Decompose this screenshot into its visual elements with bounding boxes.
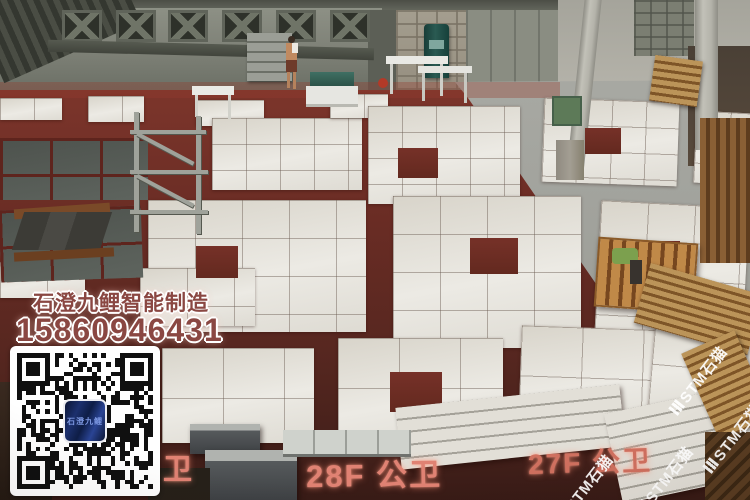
exhaust-fan-6 bbox=[330, 10, 370, 42]
person-shirt bbox=[292, 43, 298, 53]
dark-slab-rows bbox=[0, 138, 148, 200]
exhaust-fan-3 bbox=[168, 10, 208, 42]
block-wall-right bbox=[634, 0, 694, 56]
red-bucket bbox=[378, 78, 388, 88]
stacked-green-tiles bbox=[310, 72, 354, 86]
work-table-1 bbox=[386, 56, 448, 64]
tile-patch bbox=[368, 106, 520, 204]
table-leg bbox=[422, 73, 425, 101]
work-table-2 bbox=[418, 66, 472, 73]
factory-photo: 卫 28F 公卫 27F 公卫 STM石猫 STM石猫 STM石猫 STM石猫 … bbox=[0, 0, 750, 500]
floor-label-28f: 28F 公卫 bbox=[306, 449, 443, 496]
qr-code: 石澄九鲤 bbox=[10, 346, 160, 496]
table-leg bbox=[464, 73, 467, 103]
cabinet-label bbox=[429, 40, 444, 49]
phone-number: 15860946431 bbox=[16, 314, 223, 346]
floor-label-partial: 卫 bbox=[163, 446, 194, 488]
dark-bottle bbox=[630, 260, 642, 284]
small-table bbox=[192, 86, 234, 95]
metal-rack bbox=[130, 112, 208, 234]
tile-patch bbox=[212, 118, 362, 190]
person-leg bbox=[293, 72, 296, 89]
wood-aframe-slabs bbox=[14, 198, 114, 266]
person-leg bbox=[287, 72, 290, 88]
qr-center-logo: 石澄九鲤 bbox=[63, 399, 107, 443]
white-cart bbox=[306, 86, 358, 104]
worker-person bbox=[283, 36, 299, 90]
leaning-planks bbox=[649, 55, 703, 107]
floor-inlay bbox=[398, 148, 438, 178]
concrete-block-base bbox=[556, 140, 584, 180]
exhaust-fan-2 bbox=[116, 10, 156, 42]
exhaust-fan-1 bbox=[62, 10, 102, 42]
green-machine bbox=[552, 96, 582, 126]
floor-inlay bbox=[470, 238, 518, 274]
floor-edge-band bbox=[0, 82, 560, 98]
wall-panels bbox=[466, 10, 564, 88]
table-leg bbox=[228, 95, 231, 119]
table-leg bbox=[390, 64, 393, 94]
company-name: 石澄九鲤智能制造 bbox=[33, 293, 209, 314]
tile-strip bbox=[0, 98, 62, 120]
floor-inlay bbox=[585, 128, 621, 154]
vertical-slab-rack bbox=[700, 118, 750, 263]
floor-inlay bbox=[196, 246, 238, 278]
tile-stack bbox=[205, 450, 297, 500]
person-shorts bbox=[286, 60, 297, 72]
person-head bbox=[288, 36, 295, 43]
